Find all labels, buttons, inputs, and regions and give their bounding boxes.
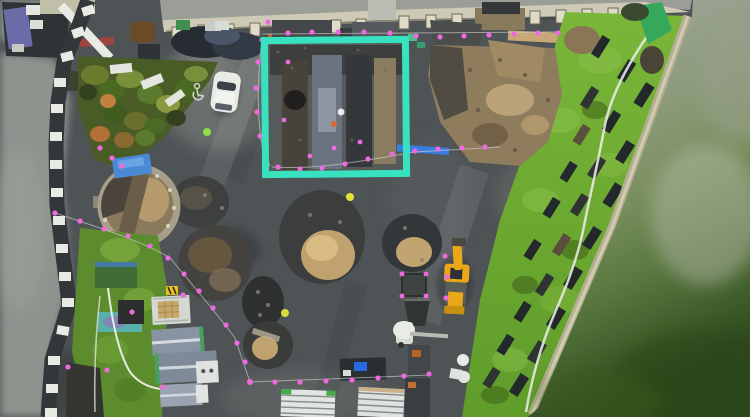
baulk xyxy=(374,58,396,164)
trench-west xyxy=(282,60,308,170)
green-dot xyxy=(203,128,211,136)
cabin-roof-3 xyxy=(160,383,209,407)
material-stack-1 xyxy=(281,389,336,417)
equipment-pallet xyxy=(408,345,430,377)
yellow-dot xyxy=(346,193,354,201)
material-stack-2 xyxy=(357,387,404,417)
white-drum xyxy=(457,354,469,366)
aerial-photo xyxy=(0,0,750,417)
trench-east xyxy=(346,55,372,167)
dark-spoil-patch xyxy=(66,362,104,417)
white-container xyxy=(151,295,190,325)
yellow-dot xyxy=(281,309,289,317)
pit-hole xyxy=(284,90,306,110)
worker-white xyxy=(338,109,345,116)
worker-hivis xyxy=(331,121,337,127)
driveway-gap xyxy=(368,0,396,20)
bush xyxy=(640,46,664,74)
cabin-roof-2 xyxy=(154,350,219,385)
blue-box xyxy=(354,362,367,371)
